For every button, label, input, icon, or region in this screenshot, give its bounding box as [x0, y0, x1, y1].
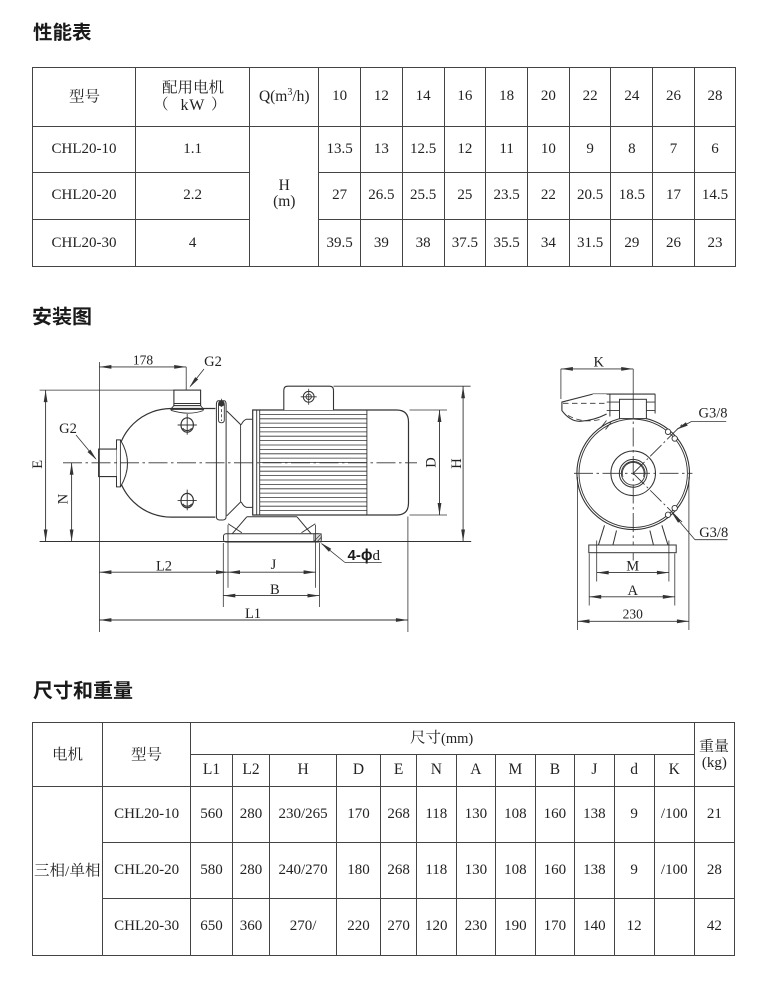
- svg-text:N: N: [56, 493, 72, 504]
- svg-text:M: M: [626, 558, 639, 574]
- svg-text:D: D: [424, 457, 440, 467]
- svg-text:L2: L2: [156, 558, 172, 574]
- svg-text:(mm): (mm): [441, 731, 473, 747]
- svg-text:230: 230: [623, 607, 644, 622]
- svg-text:G2: G2: [204, 354, 222, 370]
- svg-text:B: B: [270, 582, 280, 598]
- svg-text:/: /: [65, 864, 70, 880]
- svg-text:H: H: [449, 458, 465, 469]
- svg-text:G3/8: G3/8: [699, 406, 728, 422]
- svg-text:J: J: [271, 557, 277, 573]
- svg-text:4-ϕd: 4-ϕd: [348, 547, 381, 564]
- svg-text:G3/8: G3/8: [699, 525, 728, 541]
- svg-text:G2: G2: [59, 421, 77, 437]
- svg-text:E: E: [30, 460, 46, 469]
- svg-text:A: A: [627, 583, 638, 599]
- svg-text:K: K: [593, 354, 604, 370]
- svg-text:L1: L1: [245, 606, 261, 622]
- svg-text:178: 178: [133, 353, 154, 368]
